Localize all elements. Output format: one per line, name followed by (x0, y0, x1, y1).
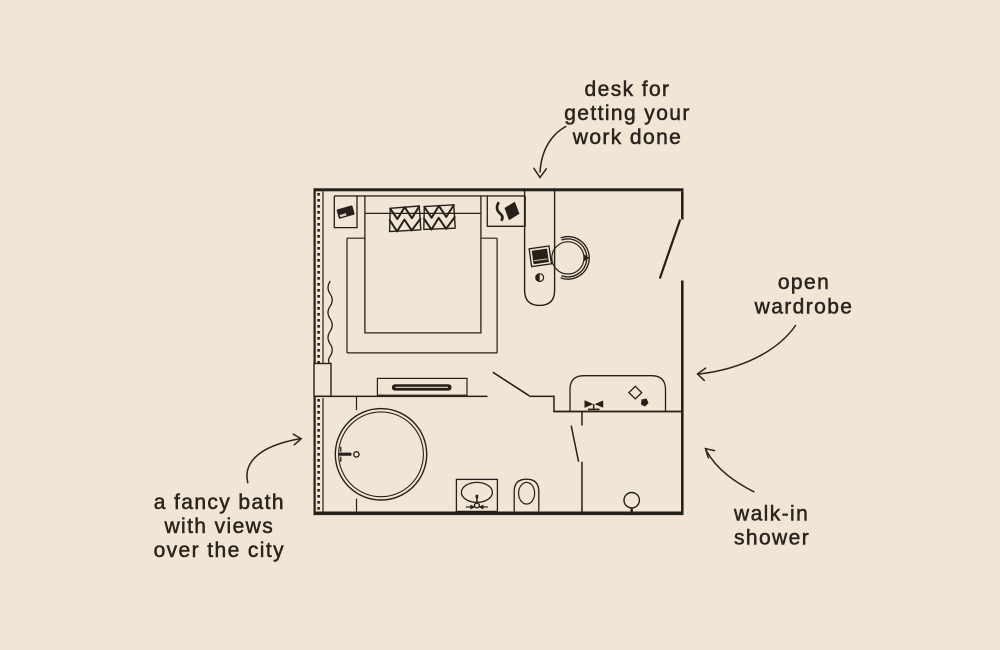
svg-text:a fancy bath: a fancy bath (154, 491, 285, 514)
svg-text:over the city: over the city (154, 539, 285, 562)
svg-text:shower: shower (734, 527, 810, 550)
svg-text:getting your: getting your (564, 102, 691, 125)
svg-text:work done: work done (572, 126, 683, 149)
svg-text:walk-in: walk-in (733, 503, 809, 526)
svg-text:desk for: desk for (585, 78, 671, 101)
svg-text:with views: with views (163, 515, 274, 538)
svg-text:open: open (778, 271, 830, 294)
svg-text:wardrobe: wardrobe (754, 296, 854, 319)
